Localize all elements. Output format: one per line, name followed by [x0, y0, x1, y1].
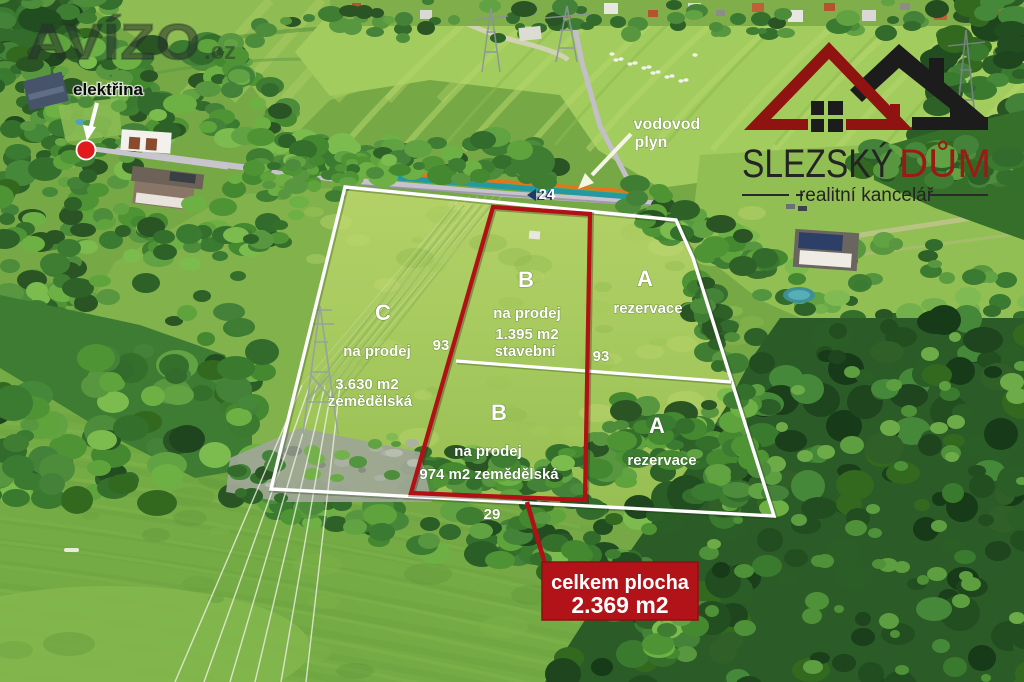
svg-text:SLEZSKÝ: SLEZSKÝ [742, 141, 893, 186]
svg-text:24: 24 [539, 186, 556, 203]
svg-text:AVÍZO: AVÍZO [27, 14, 201, 70]
svg-text:na prodej: na prodej [343, 343, 411, 360]
svg-text:rezervace: rezervace [613, 300, 682, 317]
svg-text:29: 29 [484, 506, 501, 523]
svg-text:stavební: stavební [495, 343, 557, 360]
svg-text:2.369 m2: 2.369 m2 [571, 592, 668, 618]
svg-text:vodovod: vodovod [634, 116, 701, 133]
svg-text:elektřina: elektřina [73, 80, 143, 99]
svg-text:93: 93 [593, 348, 610, 365]
svg-text:B: B [491, 400, 507, 425]
svg-text:A: A [637, 266, 653, 291]
svg-text:B: B [518, 267, 534, 292]
svg-text:A: A [649, 413, 665, 438]
svg-text:rezervace: rezervace [627, 452, 696, 469]
svg-text:93: 93 [433, 337, 450, 354]
svg-text:C: C [375, 300, 391, 325]
svg-text:na prodej: na prodej [454, 443, 522, 460]
svg-text:na prodej: na prodej [493, 305, 561, 322]
svg-text:zemědělská: zemědělská [328, 393, 413, 410]
svg-text:plyn: plyn [635, 134, 668, 151]
svg-text:celkem plocha: celkem plocha [551, 572, 690, 594]
svg-text:974 m2 zemědělská: 974 m2 zemědělská [419, 466, 559, 483]
svg-text:DŮM: DŮM [899, 139, 991, 186]
svg-text:realitní kancelář: realitní kancelář [799, 185, 934, 206]
svg-text:3.630 m2: 3.630 m2 [335, 376, 398, 393]
svg-text:.cz: .cz [204, 38, 236, 65]
svg-text:1.395 m2: 1.395 m2 [495, 326, 558, 343]
